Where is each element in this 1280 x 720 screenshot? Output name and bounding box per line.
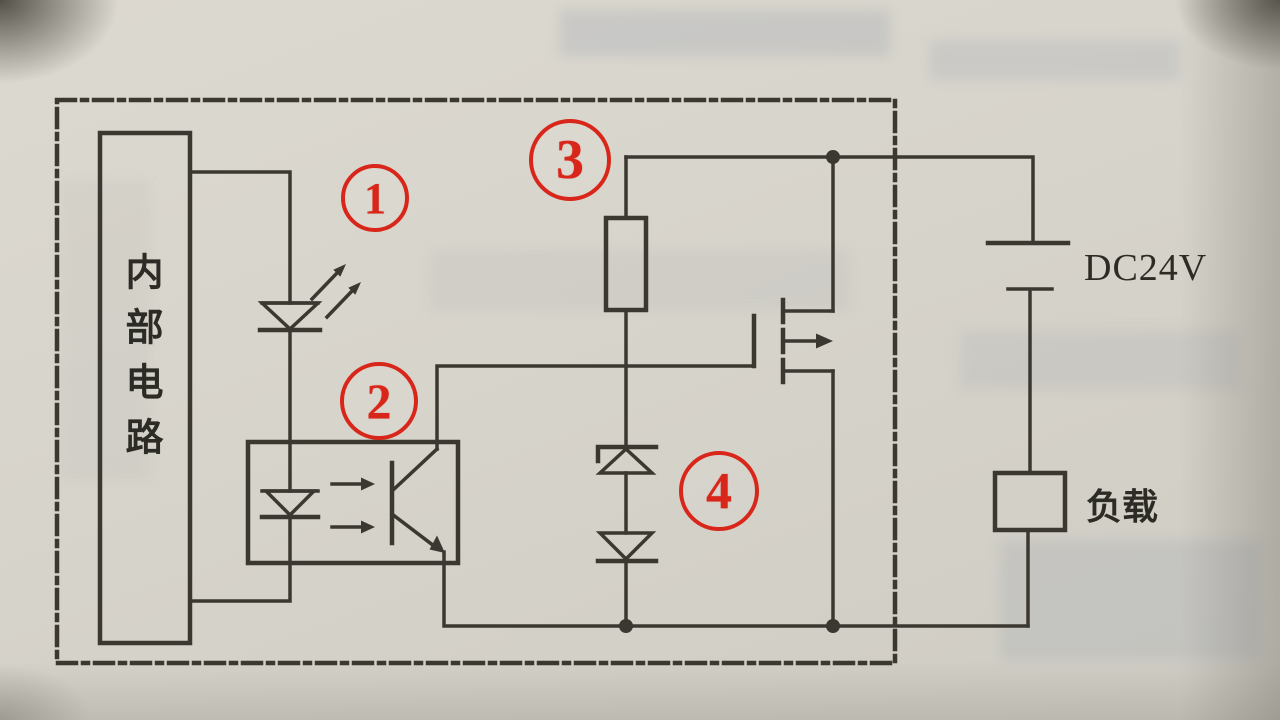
callout-3-resistor: 3 [529, 119, 611, 201]
enclosure-dashed-border [57, 100, 895, 663]
indicator-led-symbol [260, 264, 361, 330]
junction-dot [619, 619, 633, 633]
junction-dot [826, 150, 840, 164]
resistor-symbol [606, 218, 646, 310]
callout-4-zener-diodes: 4 [679, 451, 759, 531]
circuit-diagram [0, 0, 1280, 720]
power-supply-label: DC24V [1084, 246, 1207, 290]
mosfet-symbol [754, 300, 833, 382]
load-label: 负载 [1086, 478, 1158, 530]
junction-dot [826, 619, 840, 633]
battery-symbol [988, 243, 1068, 289]
callout-1-indicator-led: 1 [341, 164, 409, 232]
optocoupler-symbol [248, 442, 458, 563]
wires [190, 157, 1033, 626]
internal-circuit-label: 内部电路 [124, 252, 168, 472]
book-page-photo: 内部电路 DC24V 负载 1 2 3 4 [0, 0, 1280, 720]
callout-2-optocoupler: 2 [340, 362, 418, 440]
load-box [995, 473, 1065, 530]
